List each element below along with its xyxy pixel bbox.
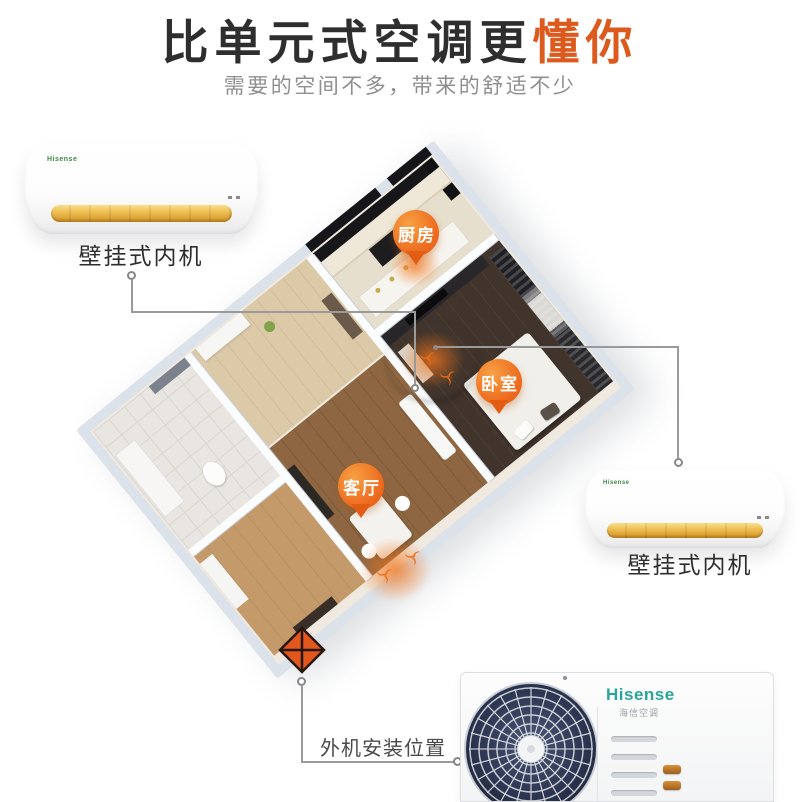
connector-line <box>301 686 303 763</box>
connector-line <box>414 311 416 387</box>
room-pin-living: 客厅 <box>338 463 384 509</box>
airflow-swirl-icon <box>404 548 422 566</box>
outdoor-bolt <box>563 676 567 680</box>
room-pin-bedroom: 卧室 <box>476 359 522 405</box>
connector-endpoint-ring <box>674 458 683 467</box>
indoor-ac-right-indicators <box>757 516 769 519</box>
connector-line <box>131 311 416 313</box>
living-chair-2 <box>392 493 413 514</box>
outdoor-vent-slot <box>611 736 657 742</box>
kitchen-bottle <box>374 287 381 294</box>
connector-endpoint-ring <box>411 384 419 392</box>
indoor-ac-unit-right: Hisense <box>585 470 785 548</box>
page-title: 比单元式空调更懂你 <box>0 4 800 73</box>
outdoor-hisense-logo-sub: 海信空调 <box>619 706 659 719</box>
connector-line <box>677 346 679 462</box>
outdoor-copper-pipe <box>663 781 681 790</box>
connector-line <box>131 280 133 313</box>
room-pin-bedroom-label: 卧室 <box>481 370 519 395</box>
outdoor-vent-slot <box>611 772 657 778</box>
outdoor-unit-label: 外机安装位置 <box>320 732 446 761</box>
outdoor-hisense-logo: Hisense <box>606 685 675 705</box>
connector-line <box>437 346 679 348</box>
page-title-accent: 懂你 <box>533 16 639 69</box>
bedroom-pillow <box>513 419 534 440</box>
page-title-main: 比单元式空调更 <box>162 16 533 69</box>
outdoor-panel-seam <box>597 707 598 801</box>
indoor-ac-left-gold-vent <box>51 205 232 222</box>
indoor-ac-unit-left: Hisense <box>25 144 258 234</box>
indoor-ac-right-label: 壁挂式内机 <box>598 546 782 580</box>
diamond-cross-marker-icon <box>278 626 326 674</box>
bedroom-pillow-2 <box>539 402 561 422</box>
indoor-ac-right-logo: Hisense <box>603 480 630 486</box>
bathroom-shower <box>149 358 191 395</box>
indoor-ac-left-indicators <box>228 196 240 199</box>
outdoor-copper-pipe <box>663 765 681 774</box>
indoor-ac-left-logo: Hisense <box>47 156 77 163</box>
corridor-plant <box>262 319 277 334</box>
airflow-glow-dining <box>345 525 445 615</box>
airflow-swirl-icon <box>439 368 457 386</box>
indoor-ac-left-label: 壁挂式内机 <box>49 237 233 271</box>
outdoor-fan-grille-icon <box>460 674 606 802</box>
room-pin-kitchen-label: 厨房 <box>398 221 436 246</box>
connector-endpoint-ring <box>297 677 306 686</box>
outdoor-ac-unit: Hisense 海信空调 <box>460 672 774 802</box>
outdoor-vent-slot <box>611 790 657 796</box>
room-pin-living-label: 客厅 <box>343 474 381 499</box>
airflow-swirl-icon <box>376 566 394 584</box>
bathroom-toilet <box>198 457 230 490</box>
page-subtitle: 需要的空间不多，带来的舒适不少 <box>0 70 800 100</box>
outdoor-vent-slot <box>611 754 657 760</box>
connector-endpoint-ring <box>127 271 136 280</box>
room-pin-kitchen: 厨房 <box>393 210 439 256</box>
entry-cabinet <box>200 554 249 609</box>
connector-line <box>301 761 454 763</box>
indoor-ac-right-gold-vent <box>607 523 763 538</box>
corridor-vanity <box>195 312 250 361</box>
airflow-swirl-icon <box>419 349 437 367</box>
